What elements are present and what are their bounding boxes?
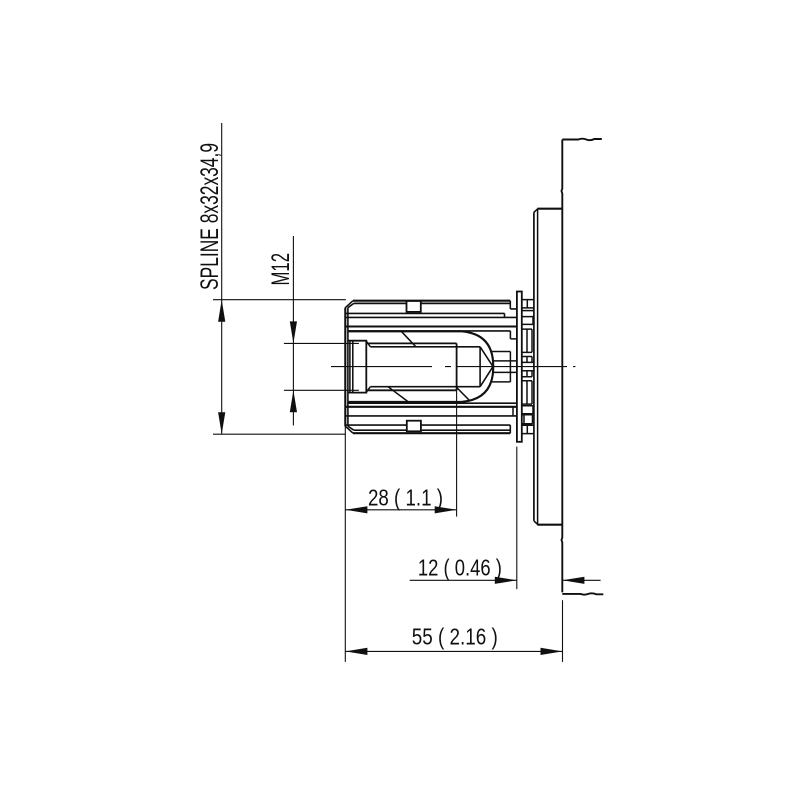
svg-text:55 ( 2.16 ): 55 ( 2.16 ) xyxy=(412,624,498,650)
svg-text:M12: M12 xyxy=(267,253,295,286)
svg-text:12 ( 0.46 ): 12 ( 0.46 ) xyxy=(418,554,502,580)
svg-text:SPLINE 8x32x34,9: SPLINE 8x32x34,9 xyxy=(196,143,224,290)
svg-text:28 ( 1.1 ): 28 ( 1.1 ) xyxy=(368,485,443,511)
